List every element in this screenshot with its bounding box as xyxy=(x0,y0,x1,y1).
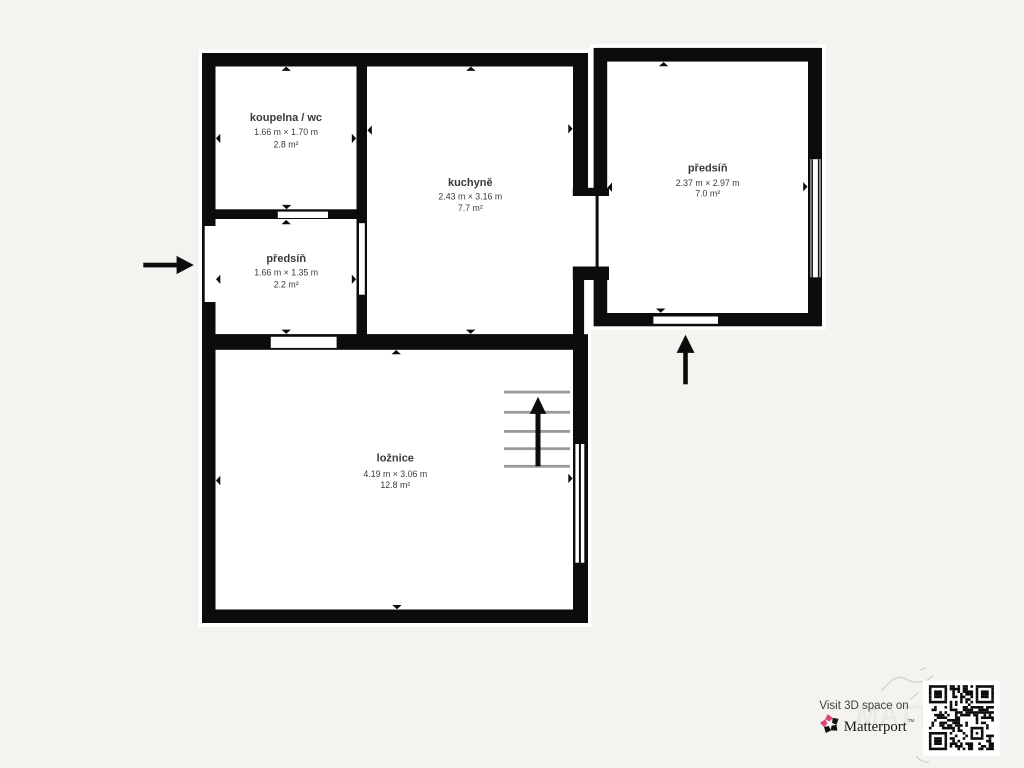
svg-text:2.37 m × 2.97 m: 2.37 m × 2.97 m xyxy=(676,178,740,188)
svg-text:koupelna / wc: koupelna / wc xyxy=(250,112,322,124)
svg-text:Visit 3D space on: Visit 3D space on xyxy=(819,700,908,712)
svg-text:předsíň: předsíň xyxy=(266,253,306,265)
svg-text:7.7 m²: 7.7 m² xyxy=(458,203,483,213)
svg-text:2.43 m × 3.16 m: 2.43 m × 3.16 m xyxy=(438,191,502,201)
svg-text:1.66 m × 1.70 m: 1.66 m × 1.70 m xyxy=(254,127,318,137)
svg-text:12.8 m²: 12.8 m² xyxy=(380,480,410,490)
svg-text:7.0 m²: 7.0 m² xyxy=(695,189,720,199)
svg-text:2.2 m²: 2.2 m² xyxy=(274,280,299,290)
svg-text:2.8 m²: 2.8 m² xyxy=(274,140,299,150)
svg-text:předsíň: předsíň xyxy=(688,162,728,174)
svg-text:kuchyně: kuchyně xyxy=(448,177,493,189)
svg-text:4.19 m × 3.06 m: 4.19 m × 3.06 m xyxy=(363,469,427,479)
svg-text:ložnice: ložnice xyxy=(377,453,414,465)
svg-text:Matterport: Matterport xyxy=(844,719,907,735)
svg-text:1.66 m × 1.35 m: 1.66 m × 1.35 m xyxy=(254,268,318,278)
svg-text:TM: TM xyxy=(908,718,915,723)
